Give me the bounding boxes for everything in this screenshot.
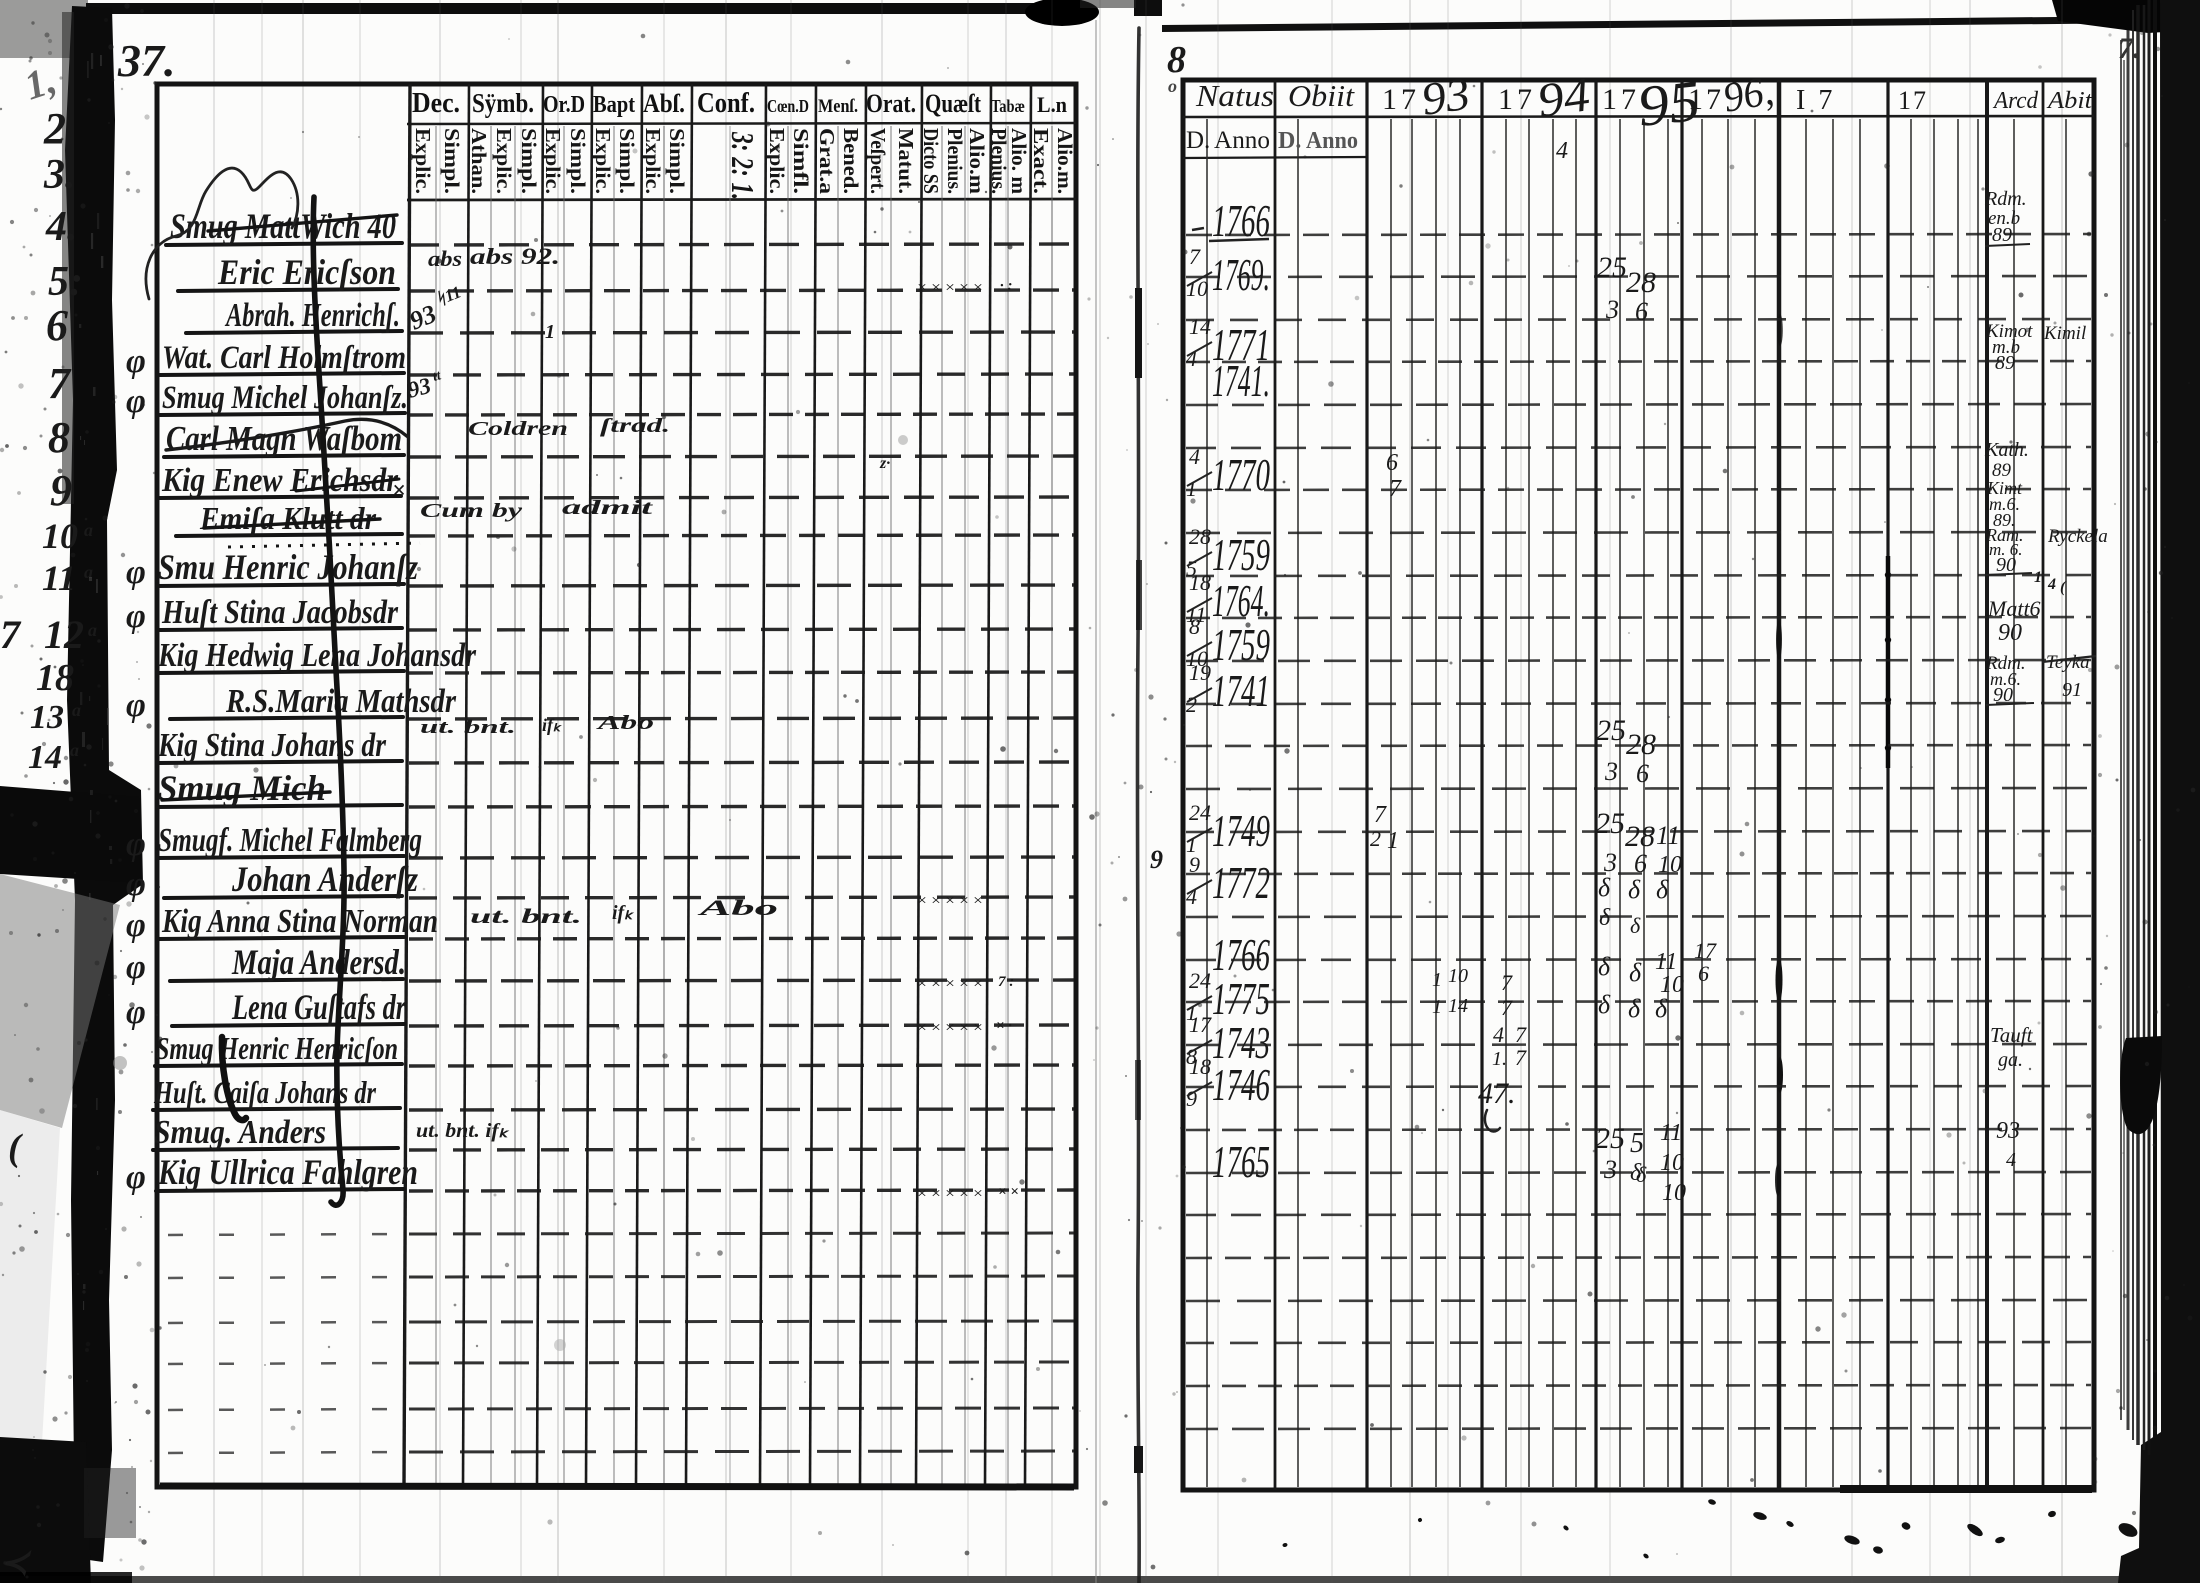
svg-text:14: 14 <box>1189 314 1211 339</box>
svg-text:Lena Guſtafs dr: Lena Guſtafs dr <box>231 987 406 1027</box>
svg-text:abs 92.: abs 92. <box>470 244 560 269</box>
svg-text:4: 4 <box>2006 1149 2016 1171</box>
svg-text:17: 17 <box>1602 83 1640 116</box>
svg-text:Quæſt: Quæſt <box>925 89 981 118</box>
svg-text:Smug Michel Johanſz.: Smug Michel Johanſz. <box>162 380 408 416</box>
svg-text:×××××: ××××× <box>916 1186 986 1202</box>
svg-text:3: 3 <box>1604 757 1618 786</box>
svg-text:7: 7 <box>1389 476 1402 502</box>
svg-text:Kig Hedwig Lena Johansdr: Kig Hedwig Lena Johansdr <box>157 637 476 674</box>
svg-text:5: 5 <box>1630 1128 1644 1159</box>
svg-text:90: 90 <box>1993 684 2013 706</box>
svg-text:Explic.: Explic. <box>541 128 565 194</box>
svg-text:o: o <box>1168 76 1177 96</box>
svg-text:24: 24 <box>1189 968 1211 993</box>
svg-text:φ: φ <box>126 994 146 1031</box>
svg-text:Smug Henric Henricſon: Smug Henric Henricſon <box>156 1030 398 1066</box>
svg-text:a: a <box>84 520 93 540</box>
svg-text:37.: 37. <box>117 35 176 86</box>
svg-text:Abit: Abit <box>2046 88 2094 114</box>
svg-text:δ: δ <box>1598 990 1611 1019</box>
svg-text:1: 1 <box>2034 569 2042 586</box>
svg-text:3: 2: 1.: 3: 2: 1. <box>725 131 761 200</box>
svg-text:δ: δ <box>1656 875 1669 904</box>
svg-text:17: 17 <box>1688 83 1724 116</box>
svg-text:28: 28 <box>1189 524 1211 549</box>
svg-text:90: 90 <box>1998 620 2022 646</box>
svg-text:Bapt: Bapt <box>593 92 635 118</box>
svg-text:2: 2 <box>43 104 66 153</box>
svg-text:∙ :: ∙ : <box>1000 278 1013 294</box>
svg-text:11: 11 <box>42 558 76 598</box>
svg-text:D.: D. <box>1278 128 1301 154</box>
svg-text:Conf.: Conf. <box>697 87 755 119</box>
svg-text:Ryckela: Ryckela <box>2047 526 2108 547</box>
svg-text:10: 10 <box>1662 1180 1686 1206</box>
svg-text:1: 1 <box>1387 828 1399 854</box>
svg-text:93: 93 <box>1418 68 1473 125</box>
svg-text:Obiit: Obiit <box>1288 78 1355 113</box>
svg-text:Smugf. Michel Falmberg: Smugf. Michel Falmberg <box>158 822 422 859</box>
svg-text:Tabæ: Tabæ <box>991 96 1025 116</box>
svg-text:Smug Mich: Smug Mich <box>158 768 326 808</box>
svg-text:11: 11 <box>1660 1120 1682 1146</box>
svg-text:10: 10 <box>1448 965 1468 987</box>
svg-text:25: 25 <box>1595 1122 1625 1155</box>
svg-text:ifₖ: ifₖ <box>612 902 634 924</box>
svg-text:Huſt. Caiſa Johans dr: Huſt. Caiſa Johans dr <box>153 1074 376 1110</box>
svg-text:1: 1 <box>1432 969 1442 991</box>
svg-text:Dicto SS: Dicto SS <box>919 128 943 194</box>
svg-text:6: 6 <box>1634 849 1647 878</box>
svg-text:18: 18 <box>1189 570 1211 595</box>
svg-text:ut. bnt. ifₖ: ut. bnt. ifₖ <box>416 1120 510 1142</box>
svg-text:17: 17 <box>1189 1012 1212 1037</box>
svg-text:93: 93 <box>1996 1118 2020 1144</box>
svg-text:φ: φ <box>126 687 146 724</box>
svg-text:Veſpert.: Veſpert. <box>866 128 890 194</box>
svg-text:1759: 1759 <box>1212 619 1270 670</box>
svg-text:δ: δ <box>1629 958 1642 987</box>
svg-text:47.: 47. <box>1478 1077 1516 1110</box>
svg-text:a: a <box>72 700 81 720</box>
svg-text:9: 9 <box>1186 1086 1197 1111</box>
svg-text:×××××: ××××× <box>916 1020 986 1036</box>
svg-text:Sÿmb.: Sÿmb. <box>472 88 534 118</box>
svg-text:5:: 5: <box>48 259 83 305</box>
svg-text:Kimil: Kimil <box>2043 323 2086 344</box>
svg-text:D.: D. <box>1186 127 1210 154</box>
svg-text:3: 3 <box>1605 295 1619 324</box>
svg-text:× ×: × × <box>998 1184 1019 1200</box>
svg-text:1765: 1765 <box>1212 1136 1270 1187</box>
svg-text:φ: φ <box>126 598 146 635</box>
svg-text:1: 1 <box>545 321 555 343</box>
svg-text:Simpl.: Simpl. <box>615 128 639 194</box>
svg-text:Athan.: Athan. <box>467 128 491 194</box>
svg-text:1749: 1749 <box>1212 805 1270 856</box>
svg-text:ſtrad.: ſtrad. <box>600 415 670 437</box>
svg-text:18: 18 <box>1189 1054 1211 1079</box>
svg-text:abs: abs <box>428 246 462 271</box>
svg-text:Kig Ullrica Fahlgren: Kig Ullrica Fahlgren <box>157 1152 418 1192</box>
svg-text:Maja Andersd.: Maja Andersd. <box>231 942 406 982</box>
svg-text:I 7: I 7 <box>1796 85 1835 116</box>
svg-text:11: 11 <box>1656 821 1680 850</box>
svg-text:7.: 7. <box>2118 32 2141 65</box>
svg-text:Coldren: Coldren <box>468 418 568 440</box>
svg-text:89: 89 <box>1995 352 2015 374</box>
svg-text:δ: δ <box>1655 994 1668 1023</box>
svg-text:L.n: L.n <box>1037 92 1067 117</box>
svg-text:Matut.: Matut. <box>894 128 918 194</box>
svg-text:Natus: Natus <box>1195 78 1274 113</box>
svg-text:Teyka: Teyka <box>2046 652 2090 673</box>
svg-text:Eric Ericſson: Eric Ericſson <box>217 252 396 292</box>
svg-text:Simpl.: Simpl. <box>517 128 541 194</box>
svg-text:17: 17 <box>1694 938 1717 963</box>
svg-text:90: 90 <box>1996 554 2016 576</box>
svg-text:1741: 1741 <box>1212 665 1270 716</box>
svg-text:a: a <box>70 740 79 760</box>
svg-text:28: 28 <box>1626 728 1656 761</box>
svg-text:1746: 1746 <box>1212 1059 1270 1110</box>
svg-text:7: 7 <box>1515 1045 1527 1070</box>
svg-text:×××××: ××××× <box>916 976 986 992</box>
svg-text:δ: δ <box>1628 994 1641 1023</box>
svg-text:×: × <box>392 478 406 504</box>
svg-text:1759: 1759 <box>1212 529 1270 580</box>
svg-text:17: 17 <box>1498 83 1536 116</box>
svg-text:4: 4 <box>1186 346 1197 371</box>
svg-text:Abo: Abo <box>696 895 778 920</box>
svg-text:17: 17 <box>1898 86 1928 115</box>
svg-text:9: 9 <box>50 466 72 515</box>
svg-text:4: 4 <box>1493 1022 1504 1047</box>
svg-text:×××××: ××××× <box>916 280 986 296</box>
svg-text:1741.: 1741. <box>1212 355 1270 406</box>
svg-text:3: 3 <box>1603 1155 1617 1184</box>
svg-text:Anno: Anno <box>1306 128 1358 154</box>
svg-text:ut. bnt.: ut. bnt. <box>470 904 582 928</box>
svg-text:Rdm.: Rdm. <box>1984 188 2027 210</box>
svg-text:Explic.: Explic. <box>492 128 516 194</box>
svg-text:91: 91 <box>2062 679 2082 701</box>
svg-text:Kath.: Kath. <box>1984 439 2029 461</box>
svg-text:8: 8 <box>1189 614 1200 639</box>
svg-text:1770: 1770 <box>1212 449 1270 500</box>
svg-text:Or.D: Or.D <box>543 92 585 118</box>
svg-text:7 :: 7 : <box>998 974 1014 990</box>
svg-text:7: 7 <box>48 359 72 408</box>
svg-text:1: 1 <box>1186 476 1197 501</box>
svg-text:δ: δ <box>1628 875 1641 904</box>
svg-text:Alio. m: Alio. m <box>1007 128 1031 195</box>
svg-text:Explic.: Explic. <box>591 128 615 194</box>
svg-text:25: 25 <box>1595 807 1625 840</box>
svg-text:φ: φ <box>126 866 146 903</box>
svg-text:9: 9 <box>1150 845 1163 874</box>
svg-text:δ: δ <box>1599 905 1611 931</box>
svg-text:19: 19 <box>1189 660 1211 685</box>
svg-text:Exact.: Exact. <box>1029 128 1053 194</box>
svg-text:Cum by: Cum by <box>420 500 522 522</box>
svg-text:Abſ.: Abſ. <box>643 89 685 118</box>
svg-text:δ: δ <box>1598 873 1611 902</box>
svg-text:ga.: ga. <box>1998 1049 2023 1071</box>
svg-text:4: 4 <box>1186 884 1197 909</box>
svg-text:1: 1 <box>1432 996 1442 1018</box>
svg-text:× ∙: × ∙ <box>996 1018 1012 1034</box>
svg-text:φ: φ <box>126 554 146 591</box>
svg-text:z·: z· <box>879 455 890 472</box>
svg-text:δ: δ <box>1598 952 1611 981</box>
svg-text:7: 7 <box>1515 1022 1527 1047</box>
svg-text:1772: 1772 <box>1212 857 1270 908</box>
svg-text:Explic.: Explic. <box>641 128 665 194</box>
svg-text:Alio.m.: Alio.m. <box>1053 128 1077 194</box>
svg-text:94: 94 <box>1534 68 1593 128</box>
svg-text:Grat.a: Grat.a <box>815 128 839 195</box>
svg-text:7: 7 <box>1501 995 1513 1020</box>
svg-text:2: 2 <box>1186 692 1197 717</box>
svg-text:24: 24 <box>1189 800 1211 825</box>
svg-text:φ: φ <box>126 949 146 986</box>
svg-text:6: 6 <box>1386 450 1398 476</box>
svg-text:Orat.: Orat. <box>866 89 916 118</box>
svg-text:Anno: Anno <box>1214 127 1270 154</box>
svg-text:Johan Anderſz: Johan Anderſz <box>231 859 418 899</box>
svg-text:4.: 4. <box>45 204 78 250</box>
svg-text:ut. bnt.: ut. bnt. <box>420 717 516 738</box>
svg-text:13: 13 <box>30 699 64 736</box>
svg-text:Wat. Carl Holmſtrom: Wat. Carl Holmſtrom <box>162 340 406 376</box>
svg-text:φ: φ <box>126 1159 146 1196</box>
svg-text:8: 8 <box>48 413 70 462</box>
svg-text:Explic.: Explic. <box>411 128 435 194</box>
svg-text:φ: φ <box>126 826 146 863</box>
svg-text:Abo: Abo <box>595 712 654 734</box>
svg-text:1.: 1. <box>1492 1048 1507 1070</box>
svg-text:Kig Stina Johans dr: Kig Stina Johans dr <box>157 727 386 764</box>
svg-text:ifₖ: ifₖ <box>542 715 562 735</box>
svg-text:10: 10 <box>1660 1150 1684 1176</box>
svg-text:7: 7 <box>0 612 22 657</box>
svg-text:×××××: ××××× <box>916 893 986 909</box>
svg-text:Kig Anna Stina Norman: Kig Anna Stina Norman <box>161 903 438 940</box>
svg-text:2: 2 <box>1370 826 1381 851</box>
svg-text:7: 7 <box>1374 802 1387 828</box>
svg-text:δ: δ <box>1630 913 1641 938</box>
svg-text:8: 8 <box>1167 39 1186 81</box>
svg-text:1769.: 1769. <box>1212 249 1270 300</box>
svg-text:Tauft: Tauft <box>1990 1023 2034 1047</box>
svg-text:4: 4 <box>2047 576 2056 593</box>
svg-text:φ: φ <box>126 907 146 944</box>
svg-text:4: 4 <box>1189 444 1200 469</box>
svg-text:Simpl.: Simpl. <box>665 128 689 194</box>
svg-text:7: 7 <box>1501 970 1513 995</box>
svg-text:18: 18 <box>36 657 74 699</box>
svg-text:96,: 96, <box>1720 68 1777 122</box>
svg-text:17: 17 <box>1382 83 1420 116</box>
svg-text:Simfl.: Simfl. <box>789 128 813 194</box>
svg-text:6: 6 <box>1635 297 1648 326</box>
svg-text:Carl Magn Waſbom: Carl Magn Waſbom <box>166 419 402 458</box>
svg-text:a: a <box>88 620 97 640</box>
svg-text:φ: φ <box>126 343 146 380</box>
svg-text:4: 4 <box>1556 138 1568 164</box>
svg-text:89: 89 <box>1992 224 2012 246</box>
svg-text:25: 25 <box>1596 714 1626 747</box>
svg-text:10: 10 <box>42 516 78 556</box>
svg-text:3.: 3. <box>43 152 76 198</box>
svg-text:Huſt Stina Jacobsdr: Huſt Stina Jacobsdr <box>161 594 398 631</box>
svg-text:28: 28 <box>1626 266 1656 299</box>
svg-text:9: 9 <box>1189 852 1200 877</box>
svg-text:25: 25 <box>1597 251 1627 284</box>
svg-text:Arcd: Arcd <box>1992 88 2039 114</box>
svg-text:Bened.: Bened. <box>839 128 863 194</box>
svg-text:6: 6 <box>1698 961 1709 986</box>
svg-text:admit: admit <box>562 497 655 519</box>
svg-text:7: 7 <box>1189 244 1201 269</box>
svg-text:Menſ.: Menſ. <box>818 96 858 117</box>
svg-text:Cœn.D: Cœn.D <box>767 96 809 116</box>
svg-text:δ: δ <box>1636 1162 1647 1187</box>
svg-text:Kig Enew Erichsdr: Kig Enew Erichsdr <box>161 462 399 499</box>
svg-text:Emiſa Klutt dr: Emiſa Klutt dr <box>199 500 376 536</box>
svg-text:14: 14 <box>1448 995 1468 1017</box>
svg-text:Plenius.: Plenius. <box>943 128 967 194</box>
svg-text:Simpl.: Simpl. <box>440 128 464 194</box>
svg-text:12: 12 <box>44 612 84 657</box>
svg-text:Smu Henric Johanſz: Smu Henric Johanſz <box>158 547 418 587</box>
svg-text:Matt6: Matt6 <box>1987 596 2041 621</box>
svg-text:Dec.: Dec. <box>412 87 460 119</box>
svg-text:φ: φ <box>126 383 146 420</box>
svg-text:Alio.m: Alio.m <box>965 128 989 195</box>
svg-text:Simpl.: Simpl. <box>566 128 590 194</box>
svg-text:Explic.: Explic. <box>765 128 789 194</box>
svg-text:6: 6 <box>1636 759 1649 788</box>
